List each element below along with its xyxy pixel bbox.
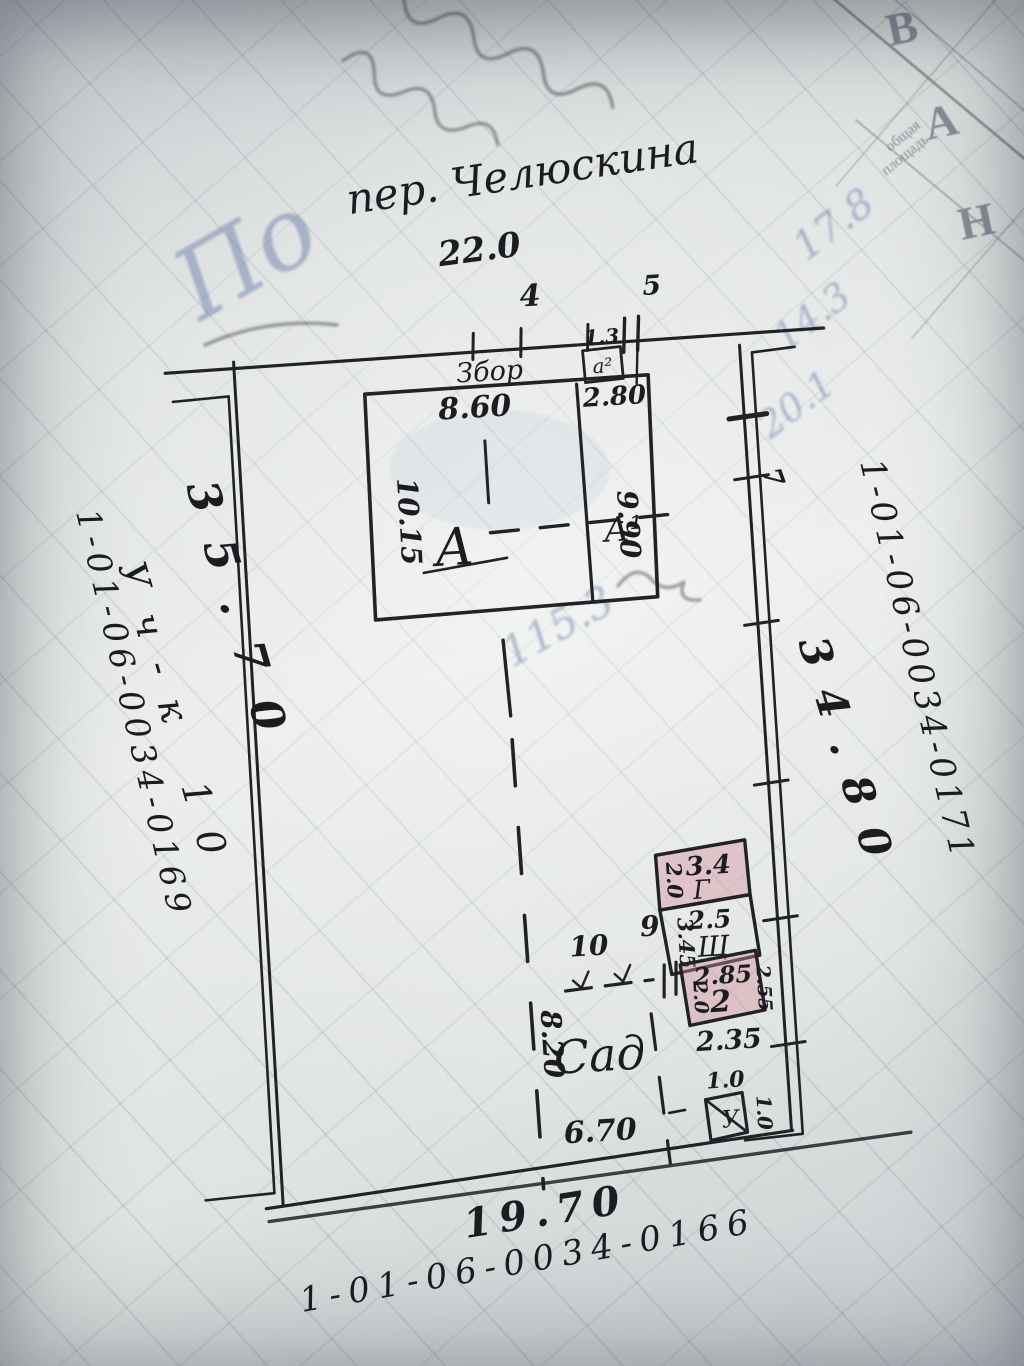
plan-svg: В А Н общая площадь По 17.8 14.3 20.1 11…: [0, 0, 1024, 1366]
paper-grain-overlay: [0, 0, 1024, 1366]
survey-plan-photo: В А Н общая площадь По 17.8 14.3 20.1 11…: [0, 0, 1024, 1366]
